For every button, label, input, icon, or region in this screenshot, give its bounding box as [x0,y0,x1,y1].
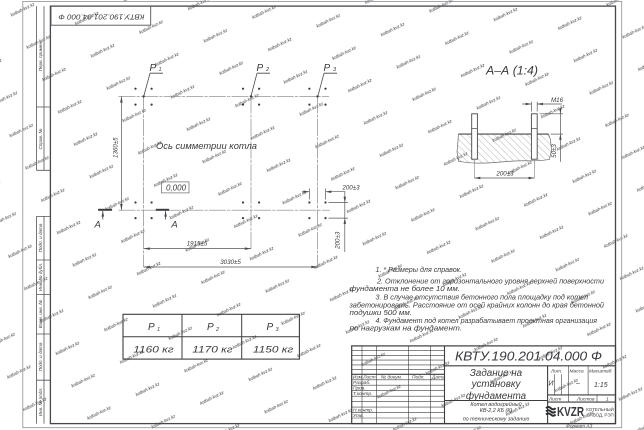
svg-text:КОТЕЛЬНЫЙ: КОТЕЛЬНЫЙ [586,407,614,412]
svg-text:2: 2 [265,67,269,73]
svg-text:Листов: Листов [576,397,595,403]
svg-text:Подп. и дата: Подп. и дата [38,223,43,252]
svg-text:Разраб.: Разраб. [353,380,370,386]
svg-text:КВТУ.190.201.04.000 Ф: КВТУ.190.201.04.000 Ф [455,350,602,364]
svg-text:P: P [257,63,264,74]
svg-text:по техническому заданию: по техническому заданию [463,417,530,423]
svg-text:М16: М16 [551,97,564,104]
svg-text:Лист: Лист [548,397,561,403]
svg-text:–: – [575,381,580,388]
svg-text:1:15: 1:15 [594,382,608,389]
svg-text:P: P [267,322,274,333]
svg-text:фундамента не более 10 мм.: фундамента не более 10 мм. [350,284,461,293]
svg-text:P: P [207,322,214,333]
svg-text:1170 кг: 1170 кг [192,345,233,355]
svg-text:Лит.: Лит. [550,369,562,375]
svg-text:ЗАВОД, РЭП: ЗАВОД, РЭП [587,412,613,417]
svg-text:Дата: Дата [431,375,445,381]
svg-text:200±3: 200±3 [495,170,514,177]
svg-text:3030±5: 3030±5 [220,259,241,266]
svg-text:установку: установку [471,379,522,390]
svg-text:Перв. примен.: Перв. примен. [38,41,43,72]
svg-text:50±3: 50±3 [551,144,558,158]
svg-text:2: 2 [215,327,219,333]
svg-text:КВ-2,2 КБ (К): КВ-2,2 КБ (К) [480,408,513,414]
svg-text:P: P [150,63,157,74]
svg-text:КВТУ.190.201.04.000 Ф: КВТУ.190.201.04.000 Ф [58,12,144,21]
svg-text:Н.контр.: Н.контр. [353,408,373,414]
svg-text:Утв.: Утв. [353,413,364,419]
svg-text:А: А [94,220,101,231]
svg-text:1150 кг: 1150 кг [253,345,294,355]
svg-text:Масштаб: Масштаб [589,369,612,375]
svg-text:Задание на: Задание на [470,368,523,379]
svg-text:А: А [170,220,177,231]
svg-text:Масса: Масса [570,369,585,375]
svg-text:1. * Размеры для справок.: 1. * Размеры для справок. [376,265,463,274]
svg-text:фундамента: фундамента [466,391,527,402]
svg-text:Пров.: Пров. [353,386,366,392]
svg-text:1915±5: 1915±5 [187,241,208,248]
svg-text:Изм.Лист: Изм.Лист [353,375,376,381]
svg-text:по нагрузкам на фундамент.: по нагрузкам на фундамент. [350,324,463,333]
svg-text:Инв. № подл.: Инв. № подл. [38,388,43,417]
svg-text:1360±5: 1360±5 [113,137,120,158]
svg-text:1160 кг: 1160 кг [133,345,174,355]
svg-text:0,000: 0,000 [166,184,187,193]
svg-text:P: P [324,63,331,74]
svg-text:Подп.: Подп. [412,375,425,381]
svg-text:1: 1 [159,67,162,73]
svg-text:Подп. и дата: Подп. и дата [38,342,43,371]
svg-text:P: P [148,322,155,333]
svg-text:№ докум.: № докум. [381,375,402,381]
svg-text:Инв. № дубл.: Инв. № дубл. [38,263,43,291]
svg-text:Т.контр.: Т.контр. [353,391,372,397]
svg-text:1: 1 [606,397,609,403]
svg-text:Ось симметрии котла: Ось симметрии котла [156,141,257,152]
svg-text:200±3: 200±3 [335,231,342,250]
svg-text:200±3: 200±3 [341,185,360,192]
svg-text:KVZR: KVZR [557,404,584,419]
svg-text:Формат А3: Формат А3 [566,424,593,430]
svg-text:Котел водогрейный: Котел водогрейный [470,401,521,408]
svg-text:1: 1 [157,327,160,333]
svg-text:А–А (1:4): А–А (1:4) [485,66,538,78]
svg-text:Взам. инв. №: Взам. инв. № [38,300,43,328]
svg-text:Справ. №: Справ. № [38,129,43,150]
